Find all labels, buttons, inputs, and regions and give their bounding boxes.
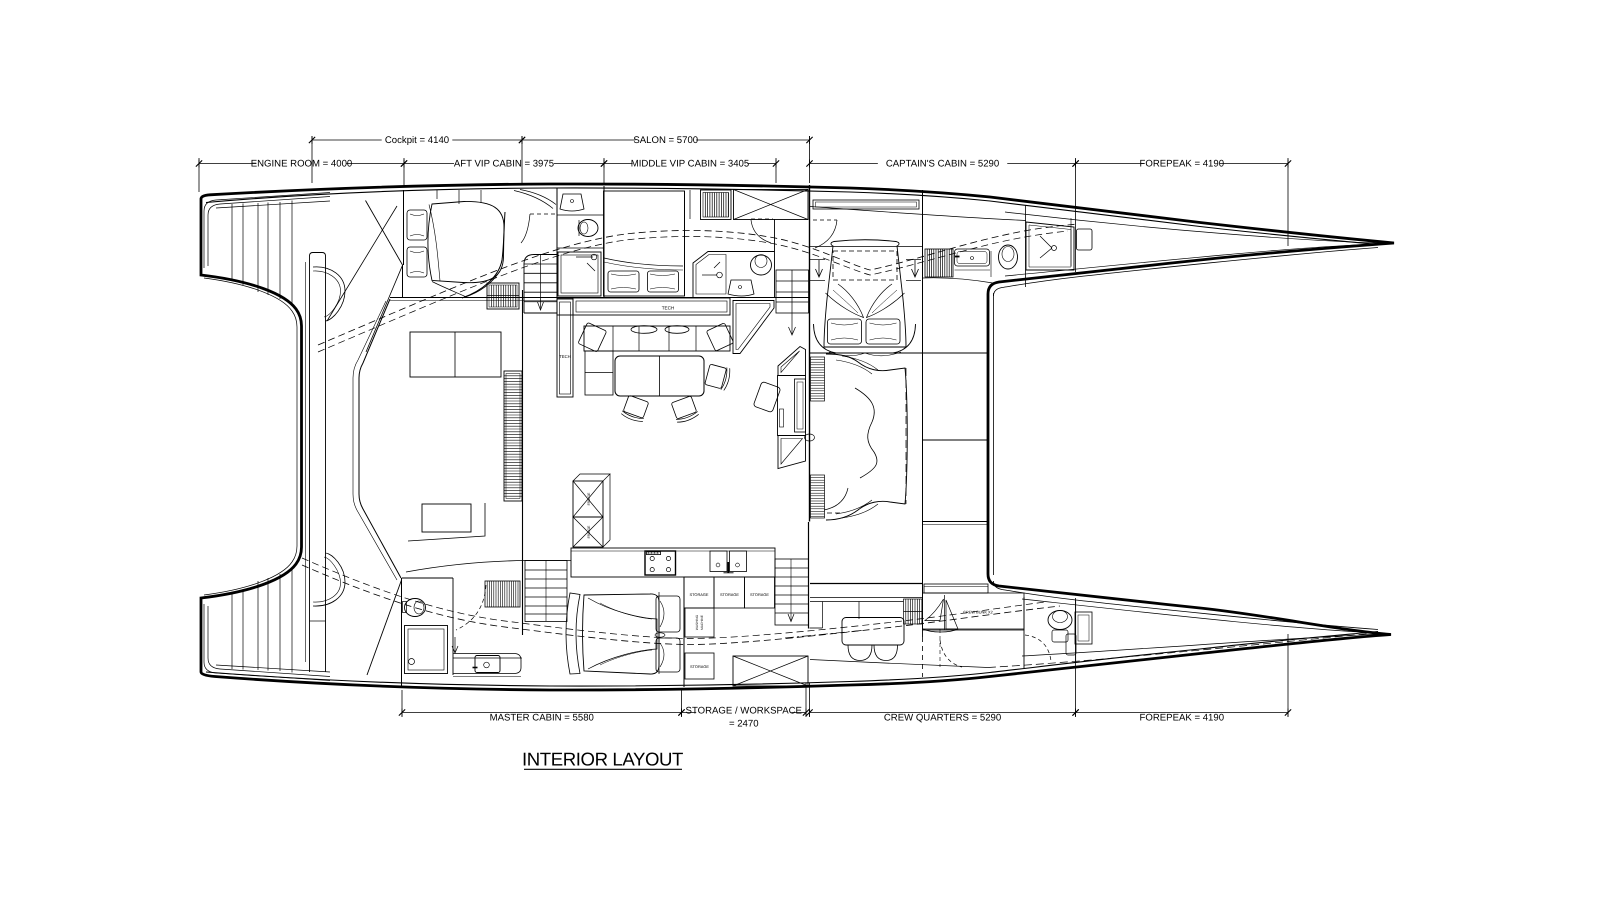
svg-text:AFT VIP CABIN = 3975: AFT VIP CABIN = 3975 [454, 158, 554, 169]
svg-text:FOREPEAK = 4190: FOREPEAK = 4190 [1140, 158, 1225, 169]
svg-text:FRIDGE: FRIDGE [587, 492, 591, 506]
svg-text:Cockpit = 4140: Cockpit = 4140 [385, 135, 449, 146]
svg-text:TECH: TECH [559, 354, 570, 359]
svg-text:SALON = 5700: SALON = 5700 [633, 135, 698, 146]
svg-text:WASHING: WASHING [695, 614, 699, 630]
svg-text:ENGINE ROOM = 4000: ENGINE ROOM = 4000 [251, 158, 353, 169]
svg-text:INTERIOR LAYOUT: INTERIOR LAYOUT [522, 749, 683, 770]
svg-text:CREW QUARTERS = 5290: CREW QUARTERS = 5290 [884, 713, 1001, 724]
svg-text:MIDDLE VIP CABIN = 3405: MIDDLE VIP CABIN = 3405 [631, 158, 749, 169]
svg-text:STORAGE: STORAGE [720, 592, 739, 597]
svg-text:CAPTAIN'S CABIN = 5290: CAPTAIN'S CABIN = 5290 [886, 158, 999, 169]
svg-text:MACHINE: MACHINE [700, 615, 704, 630]
svg-text:MASTER CABIN = 5580: MASTER CABIN = 5580 [490, 713, 594, 724]
svg-text:STORAGE: STORAGE [690, 664, 709, 669]
svg-text:STORAGE / WORKSPACE: STORAGE / WORKSPACE [686, 706, 802, 717]
svg-text:STORAGE: STORAGE [750, 592, 769, 597]
svg-text:STORAGE: STORAGE [690, 592, 709, 597]
svg-text:TECH: TECH [662, 306, 675, 311]
svg-text:FRIDGE: FRIDGE [587, 525, 591, 539]
svg-text:= 2470: = 2470 [729, 719, 759, 730]
svg-text:CREW BUNK X2: CREW BUNK X2 [963, 610, 993, 615]
svg-text:FOREPEAK = 4190: FOREPEAK = 4190 [1140, 713, 1225, 724]
